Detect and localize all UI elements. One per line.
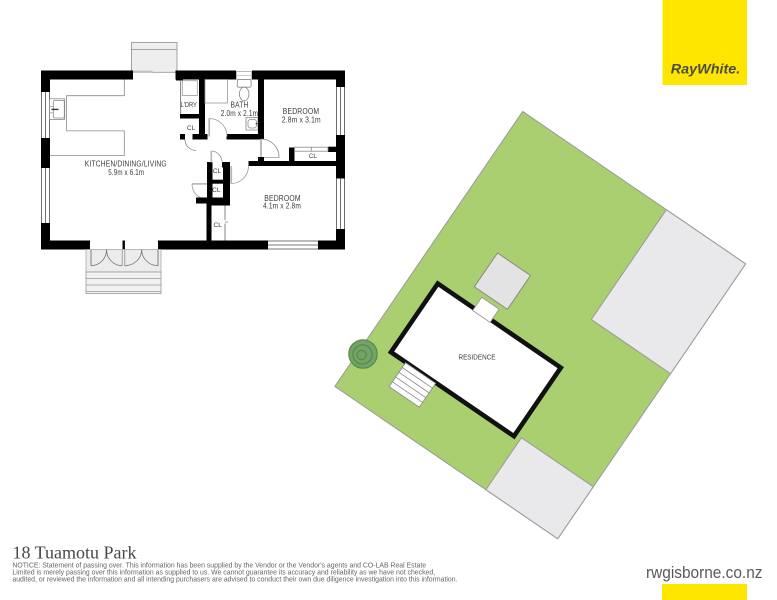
svg-text:5.9m x 6.1m: 5.9m x 6.1m	[108, 168, 144, 177]
svg-text:CL: CL	[213, 168, 222, 175]
svg-text:CL: CL	[212, 187, 221, 194]
svg-text:4.1m x 2.8m: 4.1m x 2.8m	[263, 202, 301, 211]
svg-text:NOTICE: Statement of passing o: NOTICE: Statement of passing over. This …	[12, 562, 426, 569]
svg-text:audited, or reviewed the infor: audited, or reviewed the information and…	[12, 576, 457, 583]
svg-text:CL: CL	[309, 153, 318, 160]
svg-text:RayWhite.: RayWhite.	[671, 62, 741, 78]
svg-text:RESIDENCE: RESIDENCE	[459, 354, 496, 361]
svg-text:18 Tuamotu Park: 18 Tuamotu Park	[13, 543, 137, 563]
svg-text:KITCHEN/DINING/LIVING: KITCHEN/DINING/LIVING	[85, 159, 167, 168]
svg-text:rwgisborne.co.nz: rwgisborne.co.nz	[646, 564, 763, 582]
svg-text:CL: CL	[214, 222, 223, 229]
svg-text:L'DRY: L'DRY	[180, 102, 197, 109]
svg-text:2.0m x 2.1m: 2.0m x 2.1m	[221, 109, 259, 118]
svg-text:CL: CL	[187, 125, 196, 132]
svg-text:Limited is merely passing over: Limited is merely passing over this info…	[12, 569, 435, 576]
svg-text:2.8m x 3.1m: 2.8m x 3.1m	[282, 116, 321, 125]
